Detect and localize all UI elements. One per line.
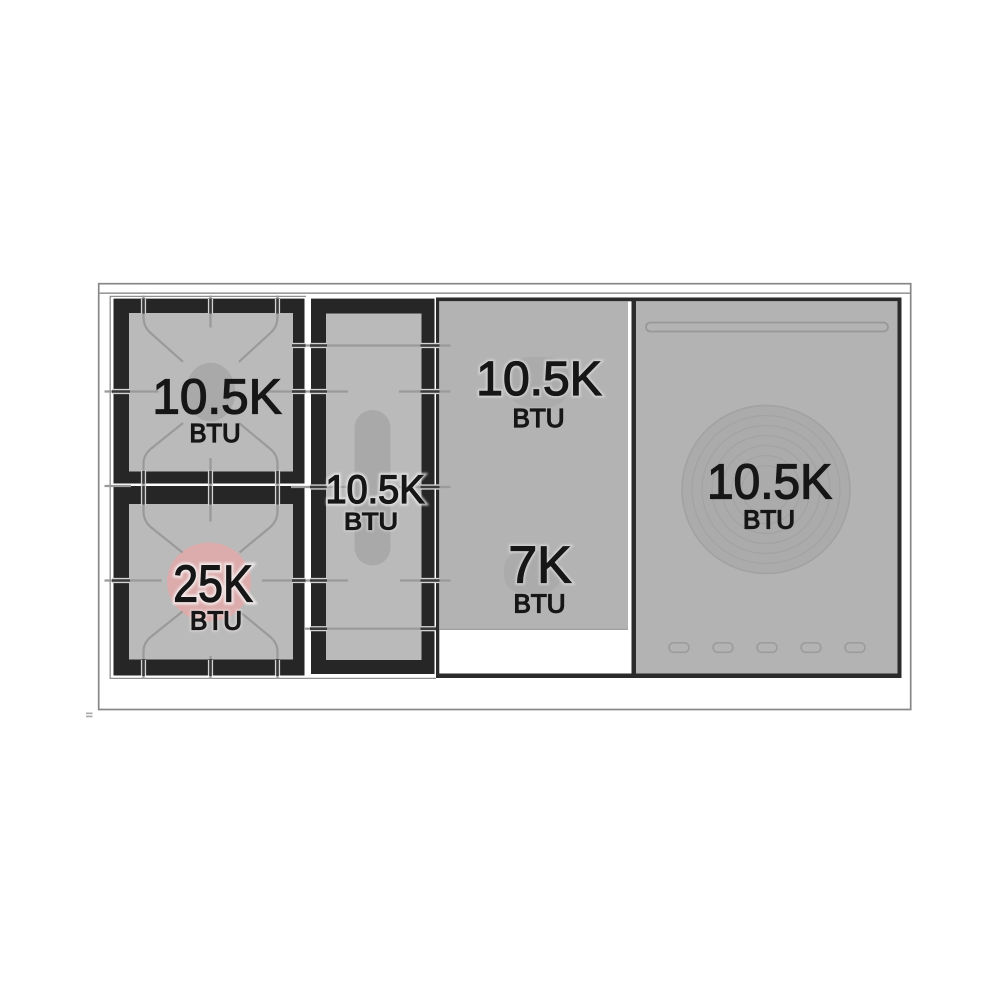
svg-text:10.5K: 10.5K — [707, 456, 832, 510]
svg-text:10.5K: 10.5K — [152, 369, 281, 424]
svg-text:25K: 25K — [173, 555, 253, 613]
svg-text:10.5K: 10.5K — [326, 468, 425, 512]
svg-text:BTU: BTU — [344, 509, 398, 536]
svg-text:BTU: BTU — [190, 606, 242, 636]
svg-text:BTU: BTU — [743, 505, 795, 535]
svg-text:10.5K: 10.5K — [476, 353, 601, 406]
svg-text:BTU: BTU — [514, 589, 566, 619]
svg-text:BTU: BTU — [190, 420, 241, 448]
svg-text:BTU: BTU — [513, 403, 565, 433]
svg-text:7K: 7K — [509, 536, 572, 594]
